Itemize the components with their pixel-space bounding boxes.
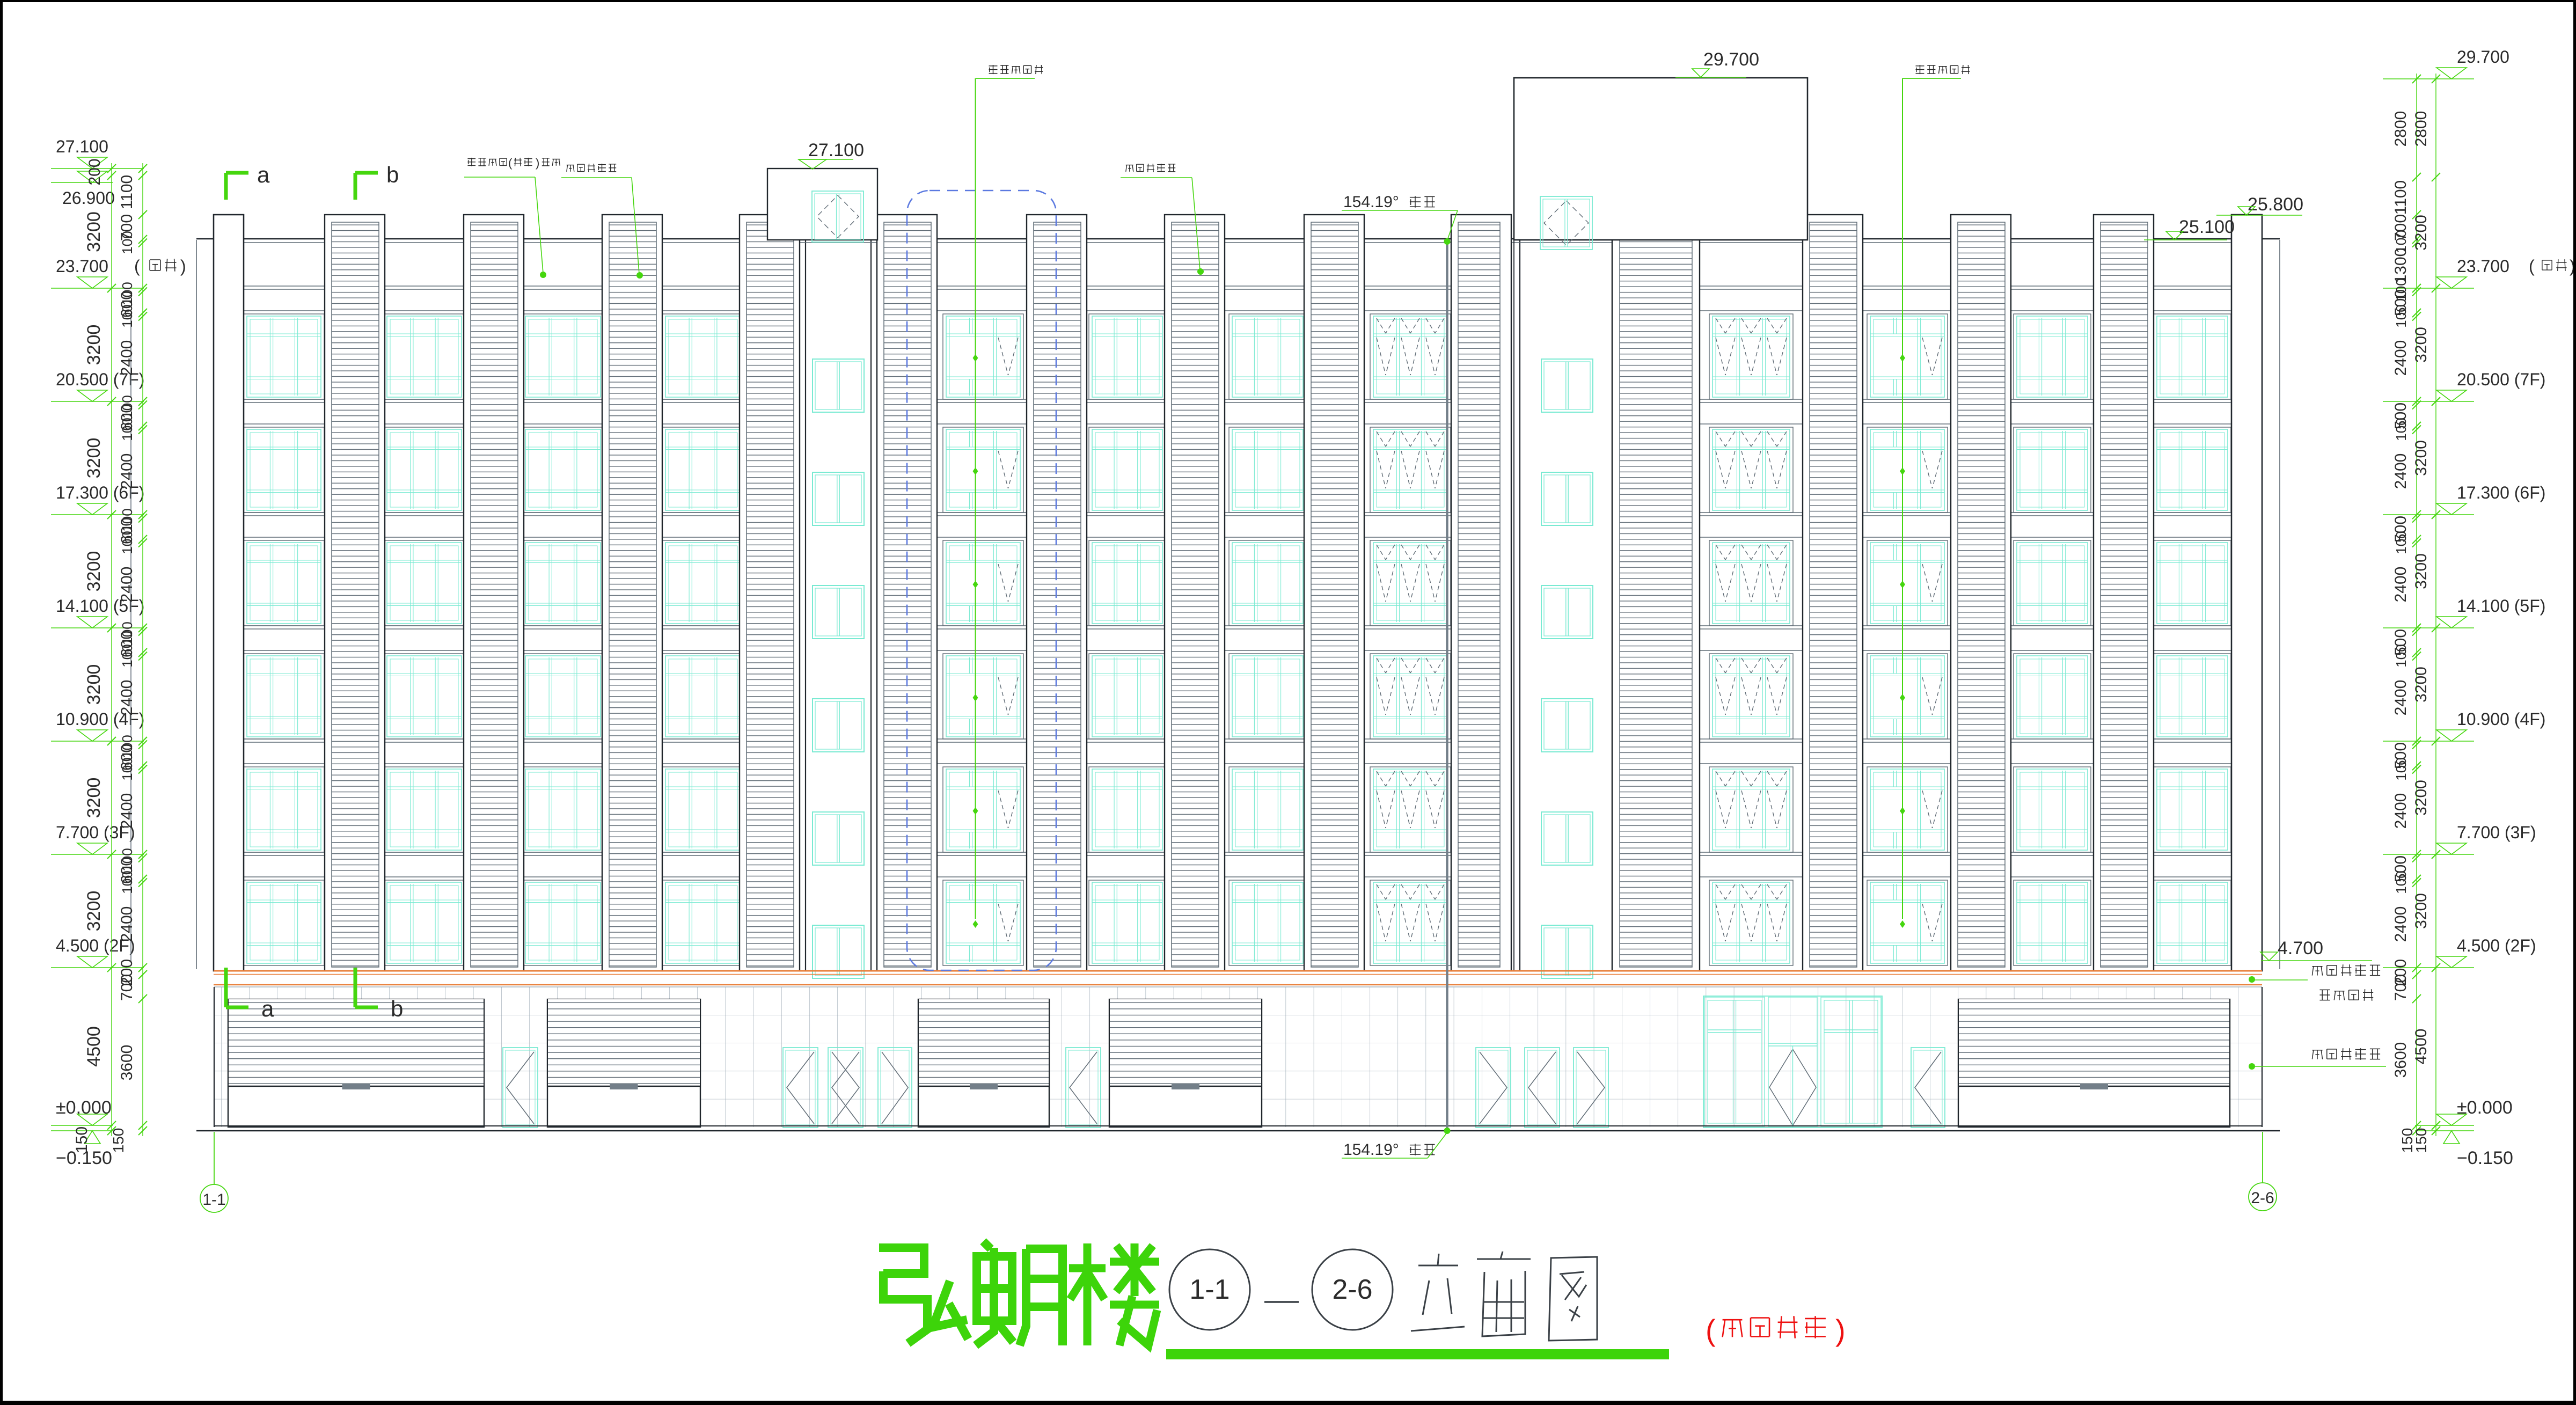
svg-text:3200: 3200 <box>84 664 104 705</box>
svg-text:3200: 3200 <box>2412 553 2430 589</box>
svg-text:700: 700 <box>118 974 136 1001</box>
svg-text:4500: 4500 <box>84 1026 104 1067</box>
svg-text:1100: 1100 <box>2392 180 2410 215</box>
svg-text:23.700: 23.700 <box>2457 257 2509 276</box>
svg-text:26.900: 26.900 <box>62 188 115 208</box>
svg-text:4.700: 4.700 <box>2278 938 2323 958</box>
svg-text:100: 100 <box>2393 757 2409 780</box>
svg-text:700: 700 <box>2392 974 2410 1001</box>
svg-text:): ) <box>180 257 186 276</box>
svg-text:3200: 3200 <box>2412 215 2430 251</box>
svg-text:100: 100 <box>119 231 135 254</box>
svg-text:±0.000: ±0.000 <box>56 1097 112 1118</box>
svg-text:27.100: 27.100 <box>56 137 108 156</box>
svg-text:a: a <box>257 162 270 187</box>
svg-text:2400: 2400 <box>2392 453 2410 489</box>
svg-text:2400: 2400 <box>118 906 136 942</box>
svg-text:3200: 3200 <box>2412 440 2430 476</box>
svg-text:2400: 2400 <box>2392 906 2410 942</box>
svg-text:25.100: 25.100 <box>2179 217 2235 237</box>
svg-text:2400: 2400 <box>2392 567 2410 603</box>
svg-text:2400: 2400 <box>118 793 136 829</box>
svg-text:23.700: 23.700 <box>56 257 108 276</box>
svg-text:(: ( <box>134 257 140 276</box>
svg-text:4.500 (2F): 4.500 (2F) <box>2457 936 2536 955</box>
svg-text:3600: 3600 <box>118 1045 136 1081</box>
svg-text:3200: 3200 <box>84 778 104 818</box>
svg-text:2800: 2800 <box>2412 111 2430 147</box>
svg-text:2400: 2400 <box>118 453 136 489</box>
svg-text:): ) <box>1835 1313 1846 1347</box>
svg-text:(: ( <box>2529 257 2535 276</box>
svg-text:154.19°: 154.19° <box>1343 193 1399 211</box>
svg-text:(: ( <box>1706 1313 1716 1347</box>
svg-text:2400: 2400 <box>2392 680 2410 716</box>
svg-text:(: ( <box>508 156 513 170</box>
svg-text:2400: 2400 <box>118 340 136 376</box>
svg-text:2400: 2400 <box>118 680 136 716</box>
svg-text:25.800: 25.800 <box>2248 194 2303 215</box>
svg-text:20.500 (7F): 20.500 (7F) <box>2457 370 2545 389</box>
svg-text:±0.000: ±0.000 <box>2457 1097 2513 1118</box>
svg-text:−0.150: −0.150 <box>2457 1148 2513 1168</box>
svg-text:150: 150 <box>73 1126 91 1153</box>
svg-text:b: b <box>391 996 403 1021</box>
svg-text:3200: 3200 <box>2412 667 2430 703</box>
svg-text:100: 100 <box>2393 870 2409 894</box>
svg-text:2400: 2400 <box>2392 340 2410 376</box>
svg-text:1-1: 1-1 <box>202 1191 225 1209</box>
svg-text:4500: 4500 <box>2412 1029 2430 1065</box>
svg-text:3200: 3200 <box>2412 780 2430 816</box>
svg-text:3600: 3600 <box>2392 1042 2410 1078</box>
svg-text:2-6: 2-6 <box>1332 1274 1372 1305</box>
svg-text:100: 100 <box>119 757 135 780</box>
svg-text:100: 100 <box>2393 304 2409 327</box>
svg-text:100: 100 <box>2393 644 2409 667</box>
svg-text:3200: 3200 <box>2412 327 2430 363</box>
svg-text:100: 100 <box>119 418 135 441</box>
svg-text:2400: 2400 <box>2392 793 2410 829</box>
svg-text:100: 100 <box>119 644 135 667</box>
svg-text:100: 100 <box>119 531 135 554</box>
svg-text:b: b <box>386 162 399 187</box>
svg-text:100: 100 <box>119 870 135 894</box>
svg-text:1100: 1100 <box>118 175 136 210</box>
svg-text:10.900 (4F): 10.900 (4F) <box>2457 709 2545 729</box>
svg-text:3200: 3200 <box>84 891 104 932</box>
svg-text:2800: 2800 <box>2392 111 2410 147</box>
svg-text:): ) <box>536 156 539 170</box>
svg-text:100: 100 <box>2393 418 2409 441</box>
svg-text:3200: 3200 <box>84 551 104 592</box>
svg-text:1-1: 1-1 <box>1189 1274 1230 1305</box>
svg-text:154.19°: 154.19° <box>1343 1141 1399 1159</box>
svg-text:100: 100 <box>2393 531 2409 554</box>
svg-text:7.700 (3F): 7.700 (3F) <box>2457 823 2536 842</box>
svg-text:a: a <box>261 996 274 1021</box>
svg-text:150: 150 <box>2399 1128 2416 1153</box>
svg-text:29.700: 29.700 <box>2457 47 2509 67</box>
svg-text:27.100: 27.100 <box>808 140 864 160</box>
svg-text:150: 150 <box>110 1128 127 1153</box>
svg-text:2-6: 2-6 <box>2251 1189 2274 1207</box>
svg-text:3200: 3200 <box>84 438 104 479</box>
svg-text:100: 100 <box>119 304 135 327</box>
svg-text:2400: 2400 <box>118 567 136 603</box>
svg-text:14.100 (5F): 14.100 (5F) <box>2457 596 2545 616</box>
svg-text:3200: 3200 <box>2412 893 2430 929</box>
svg-text:3200: 3200 <box>84 211 104 252</box>
svg-text:3200: 3200 <box>84 325 104 365</box>
svg-text:200: 200 <box>86 158 104 185</box>
svg-text:17.300 (6F): 17.300 (6F) <box>2457 483 2545 502</box>
svg-text:29.700: 29.700 <box>1703 49 1759 70</box>
